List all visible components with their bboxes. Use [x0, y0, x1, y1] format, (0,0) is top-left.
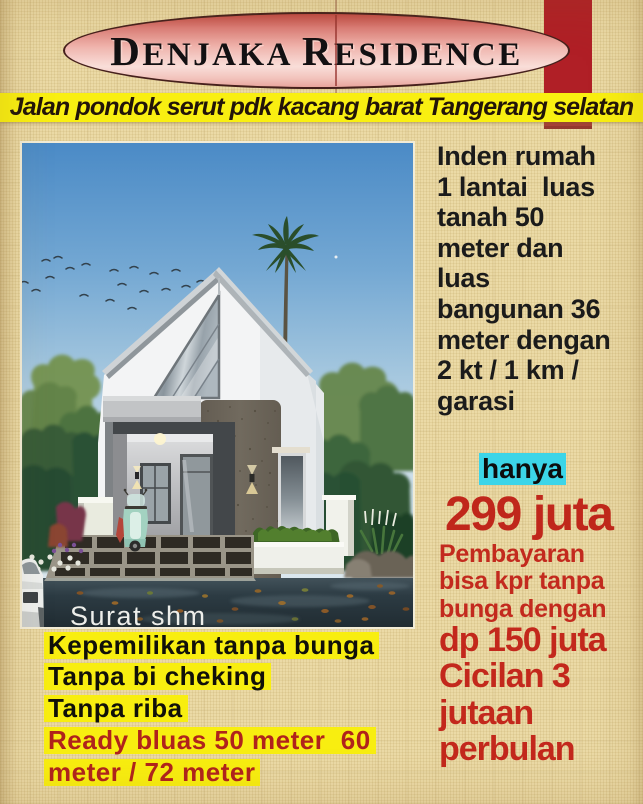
svg-text:Surat shm: Surat shm	[70, 601, 207, 629]
